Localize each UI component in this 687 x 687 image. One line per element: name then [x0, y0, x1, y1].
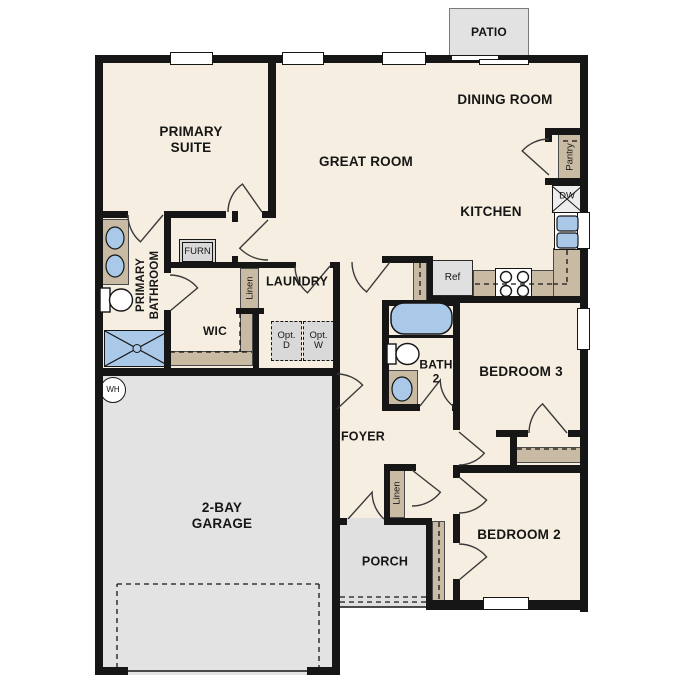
wall-segment — [545, 128, 552, 142]
wall-segment — [95, 55, 103, 675]
stove — [495, 268, 532, 299]
wall-segment — [95, 368, 339, 376]
wall-segment — [453, 514, 460, 543]
wall-segment — [545, 178, 588, 185]
wall-segment — [453, 579, 460, 608]
room-label-garage: 2-BAY GARAGE — [192, 500, 252, 532]
wall-segment — [333, 262, 340, 368]
room-label-bedroom2: BEDROOM 2 — [477, 527, 561, 543]
wall-segment — [453, 465, 588, 473]
window — [577, 308, 590, 350]
wall-segment — [268, 55, 276, 211]
closet-label-linen-hall: Linen — [244, 276, 255, 299]
window — [577, 212, 590, 249]
wall-segment — [164, 211, 226, 218]
wall-segment — [164, 310, 171, 368]
room-label-wic: WIC — [203, 324, 227, 338]
room-label-bath2: BATH 2 — [419, 358, 452, 387]
wall-segment — [95, 667, 128, 675]
water-heater: WH — [100, 377, 126, 403]
wall-segment — [382, 256, 433, 263]
primary-vanity — [102, 219, 129, 285]
wall-segment — [262, 211, 276, 218]
wall-segment — [426, 518, 432, 608]
wall-segment — [384, 464, 390, 520]
closet-label-pantry: Pantry — [564, 143, 575, 170]
refrigerator: Ref — [432, 260, 473, 296]
wall-segment — [452, 404, 460, 411]
room-label-dining-room: DINING ROOM — [457, 92, 552, 108]
wall-segment — [236, 308, 264, 314]
bedroom3-closet-shelf — [515, 447, 581, 463]
wall-segment — [382, 300, 389, 410]
room-label-bedroom3: BEDROOM 3 — [479, 364, 563, 380]
patio-sliding-door — [479, 59, 529, 65]
room-label-laundry: LAUNDRY — [266, 275, 328, 290]
room-label-great-room: GREAT ROOM — [319, 154, 413, 170]
wall-segment — [95, 211, 128, 218]
wall-segment — [382, 404, 420, 411]
room-label-kitchen: KITCHEN — [460, 204, 521, 220]
bedroom2-closet-shelf — [432, 521, 445, 603]
wall-segment — [253, 308, 259, 368]
wall-segment — [238, 262, 296, 268]
wall-segment — [568, 430, 588, 437]
room-label-patio: PATIO — [471, 25, 507, 39]
room-label-primary-suite: PRIMARY SUITE — [159, 124, 222, 156]
wall-segment — [164, 262, 238, 268]
window — [170, 52, 213, 65]
floor-plan: Ref FURN Opt. D Opt. W WH PATIODINING RO… — [0, 0, 687, 687]
room-label-porch: PORCH — [362, 555, 408, 570]
room-label-foyer: FOYER — [341, 430, 385, 445]
wic-shelf-bottom — [170, 351, 253, 366]
optional-washer: Opt. W — [303, 321, 334, 361]
kitchen-counter-vertical — [553, 248, 582, 297]
wic-shelf-right — [240, 313, 253, 352]
hall-closet-shelf — [413, 261, 427, 302]
optional-dryer: Opt. D — [271, 321, 302, 361]
wall-segment — [427, 296, 588, 303]
closet-label-linen-foyer: Linen — [391, 481, 402, 504]
wall-segment — [510, 430, 517, 465]
wall-segment — [232, 211, 238, 222]
window — [483, 597, 529, 610]
wall-segment — [388, 335, 454, 338]
wall-segment — [384, 518, 427, 525]
window — [282, 52, 324, 65]
appliance-label-dishwasher: DW — [559, 190, 575, 201]
shower — [104, 330, 170, 367]
wall-segment — [453, 465, 460, 478]
wall-segment — [332, 518, 347, 525]
bath2-vanity — [388, 370, 418, 406]
room-label-primary-bathroom: PRIMARY BATHROOM — [135, 251, 163, 319]
window — [382, 52, 426, 65]
